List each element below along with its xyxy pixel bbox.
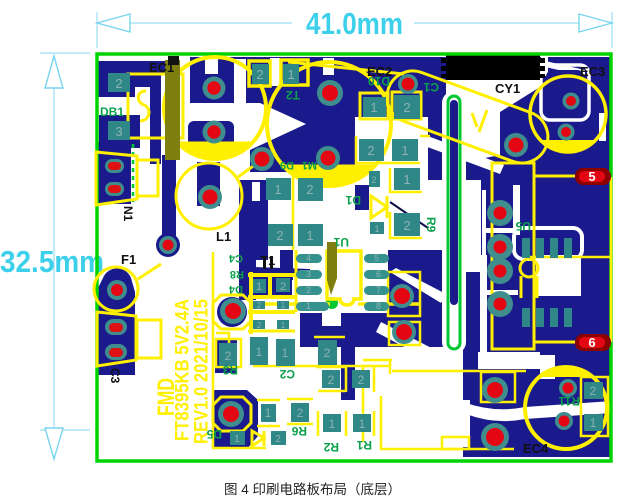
svg-text:1: 1 [306, 301, 311, 311]
svg-text:8: 8 [376, 301, 381, 311]
svg-text:R8: R8 [230, 268, 244, 280]
svg-text:2: 2 [306, 182, 313, 197]
svg-text:1: 1 [256, 281, 262, 293]
svg-text:6: 6 [588, 335, 595, 350]
svg-text:FT8395KB 5V2.4A: FT8395KB 5V2.4A [173, 299, 194, 441]
svg-text:C2: C2 [279, 367, 295, 381]
svg-text:F1: F1 [121, 252, 136, 267]
svg-text:R9: R9 [424, 217, 438, 233]
svg-text:2: 2 [297, 406, 304, 420]
svg-text:1: 1 [374, 224, 379, 234]
svg-text:5: 5 [588, 169, 595, 184]
svg-text:41.0mm: 41.0mm [306, 6, 403, 41]
svg-text:1: 1 [274, 182, 281, 197]
svg-text:R2: R2 [323, 440, 339, 454]
svg-text:2: 2 [367, 143, 374, 158]
svg-text:1: 1 [287, 67, 294, 82]
svg-text:1: 1 [281, 301, 286, 310]
svg-text:2: 2 [403, 100, 410, 115]
svg-text:1: 1 [282, 346, 289, 360]
svg-text:2: 2 [306, 285, 311, 295]
svg-text:2: 2 [324, 346, 331, 360]
svg-text:6: 6 [376, 269, 381, 279]
svg-text:EC3: EC3 [580, 64, 605, 79]
svg-text:2: 2 [276, 228, 283, 243]
svg-text:M1: M1 [302, 159, 317, 171]
svg-text:T1: T1 [260, 253, 275, 268]
svg-text:N1: N1 [121, 206, 135, 222]
svg-text:2: 2 [280, 281, 286, 293]
svg-text:1: 1 [329, 417, 336, 431]
svg-text:2: 2 [328, 373, 335, 387]
svg-text:D9: D9 [280, 159, 294, 171]
svg-text:1: 1 [306, 228, 313, 243]
svg-text:1: 1 [403, 172, 410, 187]
svg-text:32.5mm: 32.5mm [0, 244, 104, 279]
svg-text:2: 2 [403, 218, 410, 233]
svg-text:C1: C1 [423, 80, 439, 94]
svg-text:4: 4 [306, 253, 311, 263]
svg-text:R11: R11 [558, 394, 580, 408]
svg-text:D1: D1 [345, 193, 361, 207]
svg-text:1: 1 [256, 345, 263, 359]
svg-text:2: 2 [371, 175, 376, 185]
svg-text:5: 5 [374, 253, 379, 263]
svg-text:3: 3 [306, 269, 311, 279]
svg-text:C3: C3 [108, 368, 122, 384]
svg-text:D4: D4 [228, 283, 243, 295]
svg-text:1: 1 [234, 434, 240, 445]
svg-text:2: 2 [257, 321, 262, 330]
svg-text:1: 1 [281, 321, 286, 330]
svg-text:T2: T2 [286, 88, 300, 102]
svg-text:U1: U1 [333, 235, 349, 249]
svg-text:图 4 印刷电路板布局（底层）: 图 4 印刷电路板布局（底层） [224, 482, 401, 497]
svg-text:D5: D5 [206, 427, 222, 441]
svg-text:2: 2 [115, 76, 122, 91]
svg-text:DB1: DB1 [100, 105, 124, 119]
svg-text:EC1: EC1 [149, 60, 174, 75]
svg-text:CY1: CY1 [495, 81, 520, 96]
svg-text:2: 2 [225, 349, 232, 363]
svg-text:1: 1 [359, 417, 366, 431]
svg-text:1: 1 [265, 406, 272, 420]
svg-text:U5: U5 [515, 219, 531, 233]
svg-text:7: 7 [376, 285, 381, 295]
svg-text:1: 1 [401, 143, 408, 158]
svg-text:1: 1 [370, 100, 377, 115]
svg-text:EC2: EC2 [367, 64, 392, 79]
svg-text:2: 2 [257, 301, 262, 310]
svg-text:3: 3 [115, 124, 122, 139]
svg-text:R3: R3 [222, 363, 238, 377]
svg-text:R1: R1 [356, 438, 372, 452]
svg-text:EC4: EC4 [523, 441, 549, 456]
svg-text:2: 2 [590, 384, 597, 398]
svg-text:2: 2 [358, 373, 365, 387]
svg-text:L1: L1 [216, 229, 231, 244]
svg-text:REV1.0 2021/10/15: REV1.0 2021/10/15 [192, 299, 213, 444]
svg-text:1: 1 [590, 416, 597, 430]
svg-text:C4: C4 [228, 252, 243, 264]
svg-text:2: 2 [275, 434, 281, 445]
svg-text:2: 2 [256, 67, 263, 82]
svg-text:R6: R6 [291, 424, 307, 438]
